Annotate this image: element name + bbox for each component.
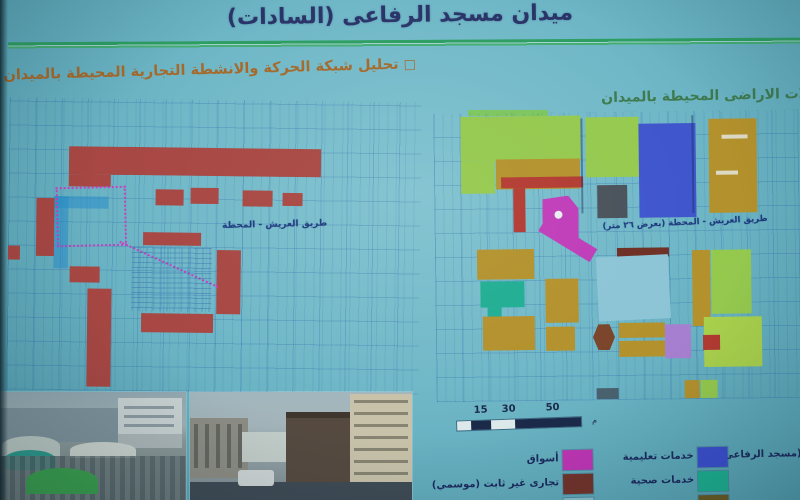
midan-dotted-outline xyxy=(56,186,127,248)
photo-umbrella xyxy=(26,468,98,494)
landuse-block xyxy=(711,249,752,313)
activity-block xyxy=(141,313,213,333)
photo-highrise xyxy=(350,394,412,496)
activity-block xyxy=(8,245,20,259)
photo-windows xyxy=(124,406,174,432)
legend-swatch xyxy=(698,495,728,500)
landuse-block xyxy=(501,176,583,188)
photo-dark-building xyxy=(286,412,350,482)
landuse-block xyxy=(638,123,696,218)
photo-balconies xyxy=(354,400,408,490)
landuse-block xyxy=(665,324,691,358)
scale-segment xyxy=(471,420,491,430)
photo-vehicle xyxy=(238,470,274,486)
left-panel-header: □تحليل شبكة الحركة والانشطة التجارية الم… xyxy=(4,56,416,83)
landuse-block xyxy=(597,185,627,218)
activity-block xyxy=(155,189,183,205)
landuse-block xyxy=(619,340,665,357)
activity-block xyxy=(282,193,302,206)
landuse-block xyxy=(716,171,738,175)
legend-swatch xyxy=(562,450,592,471)
legend-label: (مسجد الرفاعى) xyxy=(729,448,800,461)
projected-slide-photo: ميدان مسجد الرفاعى (السادات) □تحليل شبكة… xyxy=(0,0,800,500)
scale-segment xyxy=(491,420,515,430)
landuse-block xyxy=(701,380,718,398)
activity-block xyxy=(36,198,55,256)
scale-segment xyxy=(515,417,581,428)
scale-segment xyxy=(457,421,471,430)
scale-tick: 50 xyxy=(545,402,559,413)
landuse-block xyxy=(480,281,524,308)
landuse-block xyxy=(460,115,581,161)
photo-white-building xyxy=(118,398,182,448)
landuse-block xyxy=(585,117,639,178)
activity-block xyxy=(242,190,272,206)
slide-title: ميدان مسجد الرفاعى (السادات) xyxy=(170,0,630,31)
scale-tick: 30 xyxy=(501,404,515,415)
landuse-block xyxy=(477,249,534,280)
landuse-legend: (مسجد الرفاعى)خدمات تعليميةأسواقخدمات صح… xyxy=(429,443,800,500)
landuse-block xyxy=(596,254,671,321)
map-scale-bar: 15 30 50 م xyxy=(449,400,610,438)
landuse-block xyxy=(554,211,562,219)
street-photo xyxy=(190,392,412,500)
photo-windows xyxy=(194,424,242,468)
landuse-block xyxy=(685,380,700,398)
photo-road xyxy=(190,482,412,500)
movement-network-map: طريق العريش - المحطة xyxy=(6,97,422,394)
scale-unit: م xyxy=(592,416,597,425)
scale-bar-segments xyxy=(456,416,582,431)
legend-swatch xyxy=(697,447,727,468)
landuse-block xyxy=(546,327,575,351)
landuse-block xyxy=(513,188,526,232)
landuse-block xyxy=(708,118,757,213)
activity-block xyxy=(216,250,241,314)
legend-swatch xyxy=(698,471,728,492)
landuse-block xyxy=(722,134,748,138)
checkbox-bullet-icon: □ xyxy=(403,57,416,72)
legend-label: تجارى غير ثابت (موسمي) xyxy=(430,477,559,491)
market-photo xyxy=(0,392,186,500)
right-panel-header: استعمالات الاراضى المحيطة بالميدان xyxy=(556,85,800,107)
left-panel-header-text: تحليل شبكة الحركة والانشطة التجارية المح… xyxy=(3,57,399,84)
scale-tick: 15 xyxy=(473,404,487,415)
activity-block xyxy=(191,188,219,204)
legend-label: أسواق xyxy=(430,453,559,467)
activity-block xyxy=(69,174,111,187)
activity-block xyxy=(69,146,321,177)
activity-block xyxy=(70,266,100,282)
midan-hatched-area xyxy=(131,247,212,312)
landuse-block xyxy=(545,278,579,322)
landuse-block xyxy=(619,322,665,338)
photo-building xyxy=(190,418,248,478)
landuse-map: طريق العريش - المحطة (بعرض ٢٦ متر) xyxy=(433,110,800,402)
landuse-block xyxy=(597,388,619,399)
activity-block xyxy=(86,288,111,386)
activity-block xyxy=(143,232,201,246)
landuse-block xyxy=(483,316,535,351)
legend-swatch xyxy=(563,474,593,495)
photo-frame-edge xyxy=(0,0,8,500)
title-divider-rule xyxy=(8,38,800,50)
landuse-block xyxy=(703,335,720,350)
landuse-block xyxy=(461,161,495,193)
landuse-block xyxy=(692,250,711,326)
